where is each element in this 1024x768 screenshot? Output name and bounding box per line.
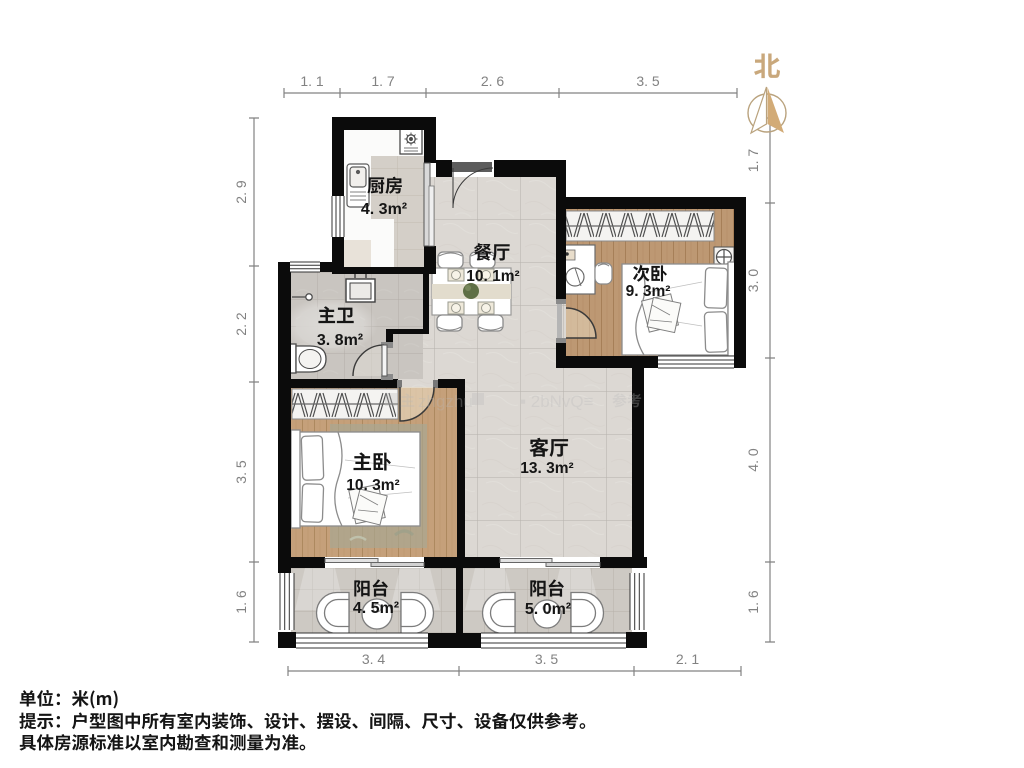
svg-text:3. 4: 3. 4 <box>362 651 386 667</box>
svg-text:4. 0: 4. 0 <box>745 448 761 472</box>
svg-text:3. 8m²: 3. 8m² <box>317 332 363 349</box>
svg-text:3. 5: 3. 5 <box>535 651 559 667</box>
svg-text:1. 7: 1. 7 <box>371 73 395 89</box>
svg-text:1. 7: 1. 7 <box>745 149 761 173</box>
svg-text:▪ 2bNvQ≡: ▪ 2bNvQ≡ <box>520 392 594 411</box>
svg-text:9. 3m²: 9. 3m² <box>626 283 671 300</box>
svg-text:2. 1: 2. 1 <box>676 651 700 667</box>
svg-text:2. 9: 2. 9 <box>233 180 249 204</box>
svg-text:3. 5: 3. 5 <box>233 460 249 484</box>
svg-text:10. 1m²: 10. 1m² <box>466 268 519 285</box>
svg-text:5. 0m²: 5. 0m² <box>525 601 571 618</box>
svg-text:4. 5m²: 4. 5m² <box>353 600 399 617</box>
svg-text:10. 3m²: 10. 3m² <box>346 477 399 494</box>
svg-text:13. 3m²: 13. 3m² <box>520 460 573 477</box>
svg-text:3. 0: 3. 0 <box>745 269 761 293</box>
svg-text:2. 2: 2. 2 <box>233 312 249 336</box>
svg-text:zhgzhu: zhgzhu <box>418 392 473 411</box>
svg-text:2. 6: 2. 6 <box>481 73 505 89</box>
svg-text:3. 5: 3. 5 <box>636 73 660 89</box>
svg-text:1. 1: 1. 1 <box>300 73 324 89</box>
svg-text:1. 6: 1. 6 <box>745 590 761 614</box>
svg-text:4. 3m²: 4. 3m² <box>361 201 407 218</box>
svg-text:1. 6: 1. 6 <box>233 590 249 614</box>
